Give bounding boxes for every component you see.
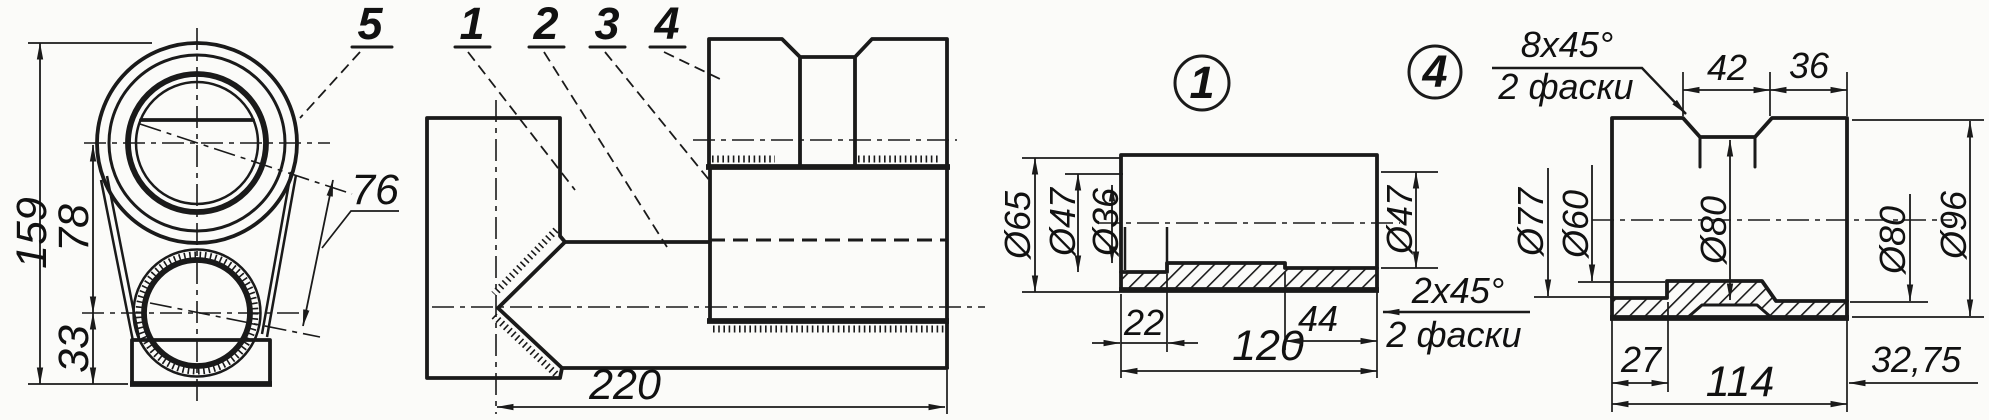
bushing-outline bbox=[710, 168, 947, 368]
dim-text-d-recess-right: Ø80 bbox=[1872, 206, 1913, 275]
dim-76-leader bbox=[322, 211, 399, 248]
dim-text-d-recess-left: Ø77 bbox=[1510, 186, 1551, 257]
callout-2-leader bbox=[544, 52, 667, 247]
dim-text-d-bore-mid: Ø36 bbox=[1085, 187, 1126, 257]
dim-text-len-right: 44 bbox=[1298, 298, 1338, 339]
callout-5-label: 5 bbox=[357, 0, 383, 49]
callout-3-label: 3 bbox=[594, 0, 619, 49]
dim-text-len-left: 22 bbox=[1123, 302, 1164, 343]
part1-hatch-area bbox=[1121, 263, 1377, 290]
part1-detail: 1 Ø65 Ø47 Ø36 Ø47 22 120 44 2x45° 2 фаск… bbox=[997, 56, 1530, 378]
inclined-center-line-lower bbox=[150, 303, 320, 337]
part4-groove-walls bbox=[1700, 137, 1755, 167]
dim-text-base-height: 33 bbox=[50, 325, 98, 373]
dim-text-groove-width: 42 bbox=[1707, 47, 1747, 88]
dim-text-d-outer: Ø65 bbox=[997, 190, 1038, 260]
dim-text-len-total: 120 bbox=[1232, 322, 1304, 370]
callout-4-leader bbox=[664, 52, 722, 80]
side-view: 220 bbox=[427, 39, 985, 414]
callout-row: 1 2 3 4 bbox=[455, 0, 722, 247]
part4-ext-lines-left bbox=[1534, 282, 1665, 297]
dim-text-len-left: 27 bbox=[1620, 339, 1663, 380]
callout-1-label: 1 bbox=[459, 0, 484, 49]
dim-text-d-outer: Ø96 bbox=[1933, 190, 1974, 260]
dim-text-len-total: 114 bbox=[1706, 358, 1775, 406]
part4-chamfer-spec: 8x45° bbox=[1521, 24, 1613, 65]
pulley-side-outline bbox=[709, 39, 947, 166]
v-notch-knurl-lower bbox=[494, 316, 558, 376]
part1-chamfer-note: 2 фаски bbox=[1385, 314, 1521, 355]
dim-line-76 bbox=[303, 180, 333, 326]
drawing-canvas: 159 78 33 76 5 1 2 3 4 bbox=[0, 0, 1989, 420]
dim-text-d-bore-left: Ø47 bbox=[1042, 186, 1083, 257]
engineering-drawing-sheet: 159 78 33 76 5 1 2 3 4 bbox=[0, 0, 1989, 420]
dim-text-right-width: 36 bbox=[1789, 45, 1830, 86]
inclined-center-line-upper bbox=[140, 124, 352, 194]
part1-balloon-label: 1 bbox=[1189, 57, 1214, 108]
front-view: 159 78 33 76 5 bbox=[8, 0, 399, 404]
part1-bore-step-lines bbox=[1125, 227, 1167, 270]
dim-text-d-bore-right: Ø47 bbox=[1379, 184, 1420, 255]
callout-3-leader bbox=[605, 52, 710, 181]
dim-text-length: 220 bbox=[588, 361, 661, 409]
dim-text-d-bore: Ø60 bbox=[1555, 190, 1596, 259]
part4-balloon-label: 4 bbox=[1421, 46, 1447, 97]
dim-text-d-groove: Ø80 bbox=[1693, 196, 1734, 265]
part1-chamfer-spec: 2x45° bbox=[1411, 270, 1504, 311]
dim-text-center-distance: 78 bbox=[50, 204, 98, 252]
part4-chamfer-note: 2 фаски bbox=[1497, 66, 1633, 107]
callout-4-label: 4 bbox=[653, 0, 679, 49]
callout-5-leader bbox=[300, 52, 360, 118]
dim-text-height-total: 159 bbox=[8, 197, 56, 269]
dim-text-len-right: 32,75 bbox=[1871, 339, 1962, 380]
dim-text-axis-distance: 76 bbox=[351, 166, 399, 214]
callout-2-label: 2 bbox=[532, 0, 558, 49]
